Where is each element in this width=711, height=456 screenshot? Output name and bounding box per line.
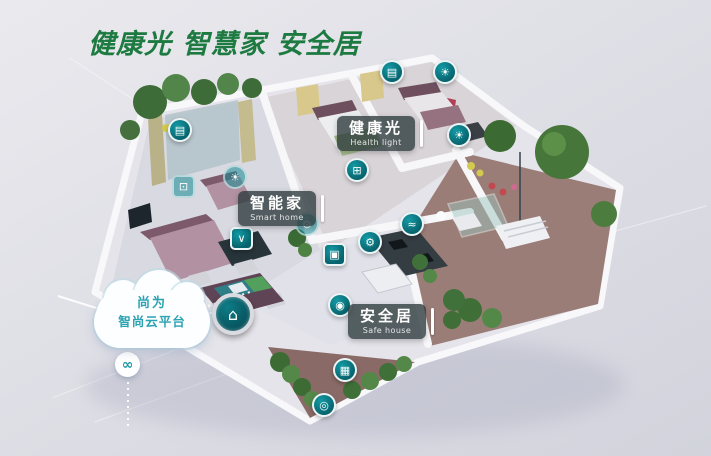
page-title: 健康光 智慧家 安全居 — [88, 22, 361, 61]
health-light-tag: 健康光 Health light — [337, 116, 415, 151]
smart-home-label: 智能家 — [248, 194, 306, 213]
smart-home-sublabel: Smart home — [248, 213, 306, 222]
health-light-label: 健康光 — [347, 119, 405, 138]
doorbell-icon: ◎ — [312, 393, 336, 417]
lamp-icon: ☀ — [223, 165, 247, 189]
safe-house-sublabel: Safe house — [358, 326, 416, 335]
door-access-icon: ▣ — [323, 243, 346, 266]
gear-icon: ⚙ — [358, 230, 382, 254]
tag-marker-bar — [420, 120, 423, 147]
curtain-icon: ▤ — [168, 118, 192, 142]
ceiling-light-icon: ☀ — [433, 60, 457, 84]
blind-icon: ▤ — [380, 60, 404, 84]
health-light-sublabel: Health light — [347, 138, 405, 147]
hub-icon: ⌂ — [212, 293, 254, 335]
switch-panel-icon: ⊞ — [345, 158, 369, 182]
cloud-platform-name: 智尚云平台 — [94, 314, 210, 330]
safe-house-label: 安全居 — [358, 307, 416, 326]
robot-vacuum-icon: ∨ — [230, 227, 253, 250]
cloud-brand-name: 尚为 — [94, 294, 210, 314]
tag-marker-bar — [321, 195, 324, 222]
safe-house-tag: 安全居 Safe house — [348, 304, 426, 339]
smart-home-poster: 健康光 智慧家 安全居 — [0, 0, 711, 456]
cloud-platform-text: 尚为 智尚云平台 — [94, 294, 210, 330]
wall-light-icon: ☀ — [447, 123, 471, 147]
tv-icon: ⊡ — [172, 175, 195, 198]
smart-home-tag: 智能家 Smart home — [238, 191, 316, 226]
cloud-platform-badge: 尚为 智尚云平台 — [94, 290, 210, 350]
house-3d-render — [0, 0, 711, 456]
fresh-air-icon: ≈ — [400, 212, 424, 236]
link-icon: ∞ — [115, 352, 140, 377]
tag-marker-bar — [431, 308, 434, 335]
camera-icon: ▦ — [333, 358, 357, 382]
